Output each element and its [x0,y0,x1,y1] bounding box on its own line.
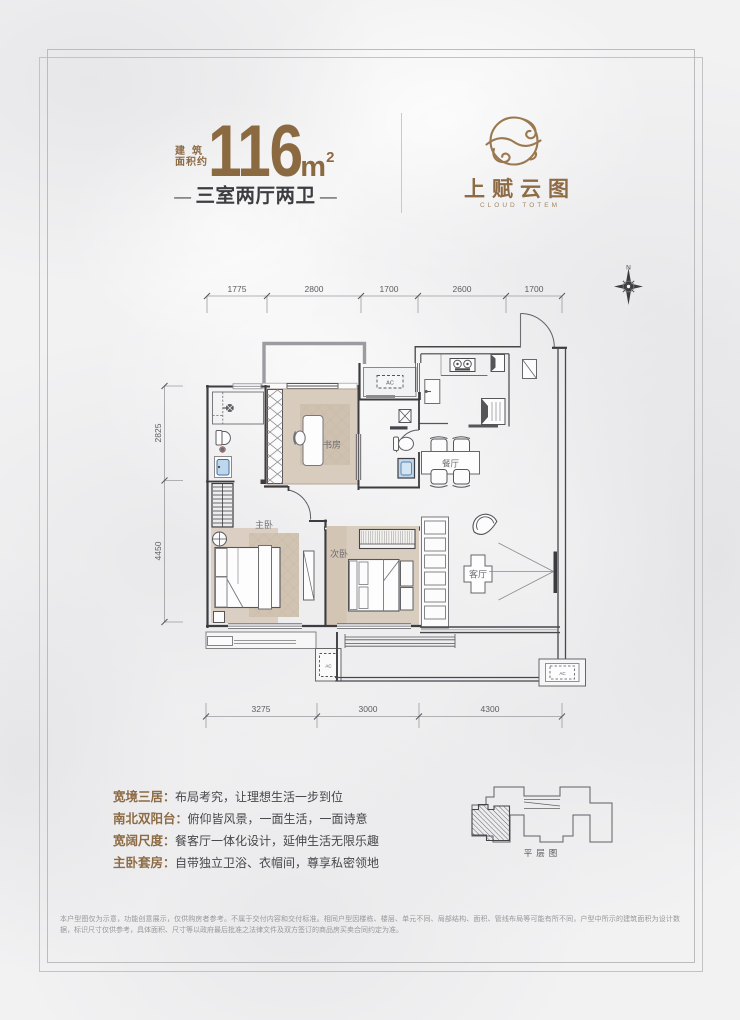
svg-text:3000: 3000 [359,704,378,714]
svg-text:AC: AC [559,671,566,676]
svg-text:AC: AC [325,664,332,669]
svg-text:2600: 2600 [453,284,472,294]
svg-text:书房: 书房 [323,439,341,450]
svg-text:4450: 4450 [153,541,163,560]
svg-text:1775: 1775 [228,284,247,294]
svg-text:2825: 2825 [153,423,163,442]
svg-text:主卧: 主卧 [255,519,273,530]
svg-text:3275: 3275 [252,704,271,714]
svg-text:1700: 1700 [380,284,399,294]
svg-text:1700: 1700 [525,284,544,294]
svg-text:次卧: 次卧 [330,548,348,559]
svg-text:餐厅: 餐厅 [442,459,460,469]
svg-text:客厅: 客厅 [469,569,487,580]
svg-text:AC: AC [386,381,394,387]
svg-text:2800: 2800 [305,284,324,294]
svg-text:4300: 4300 [481,704,500,714]
